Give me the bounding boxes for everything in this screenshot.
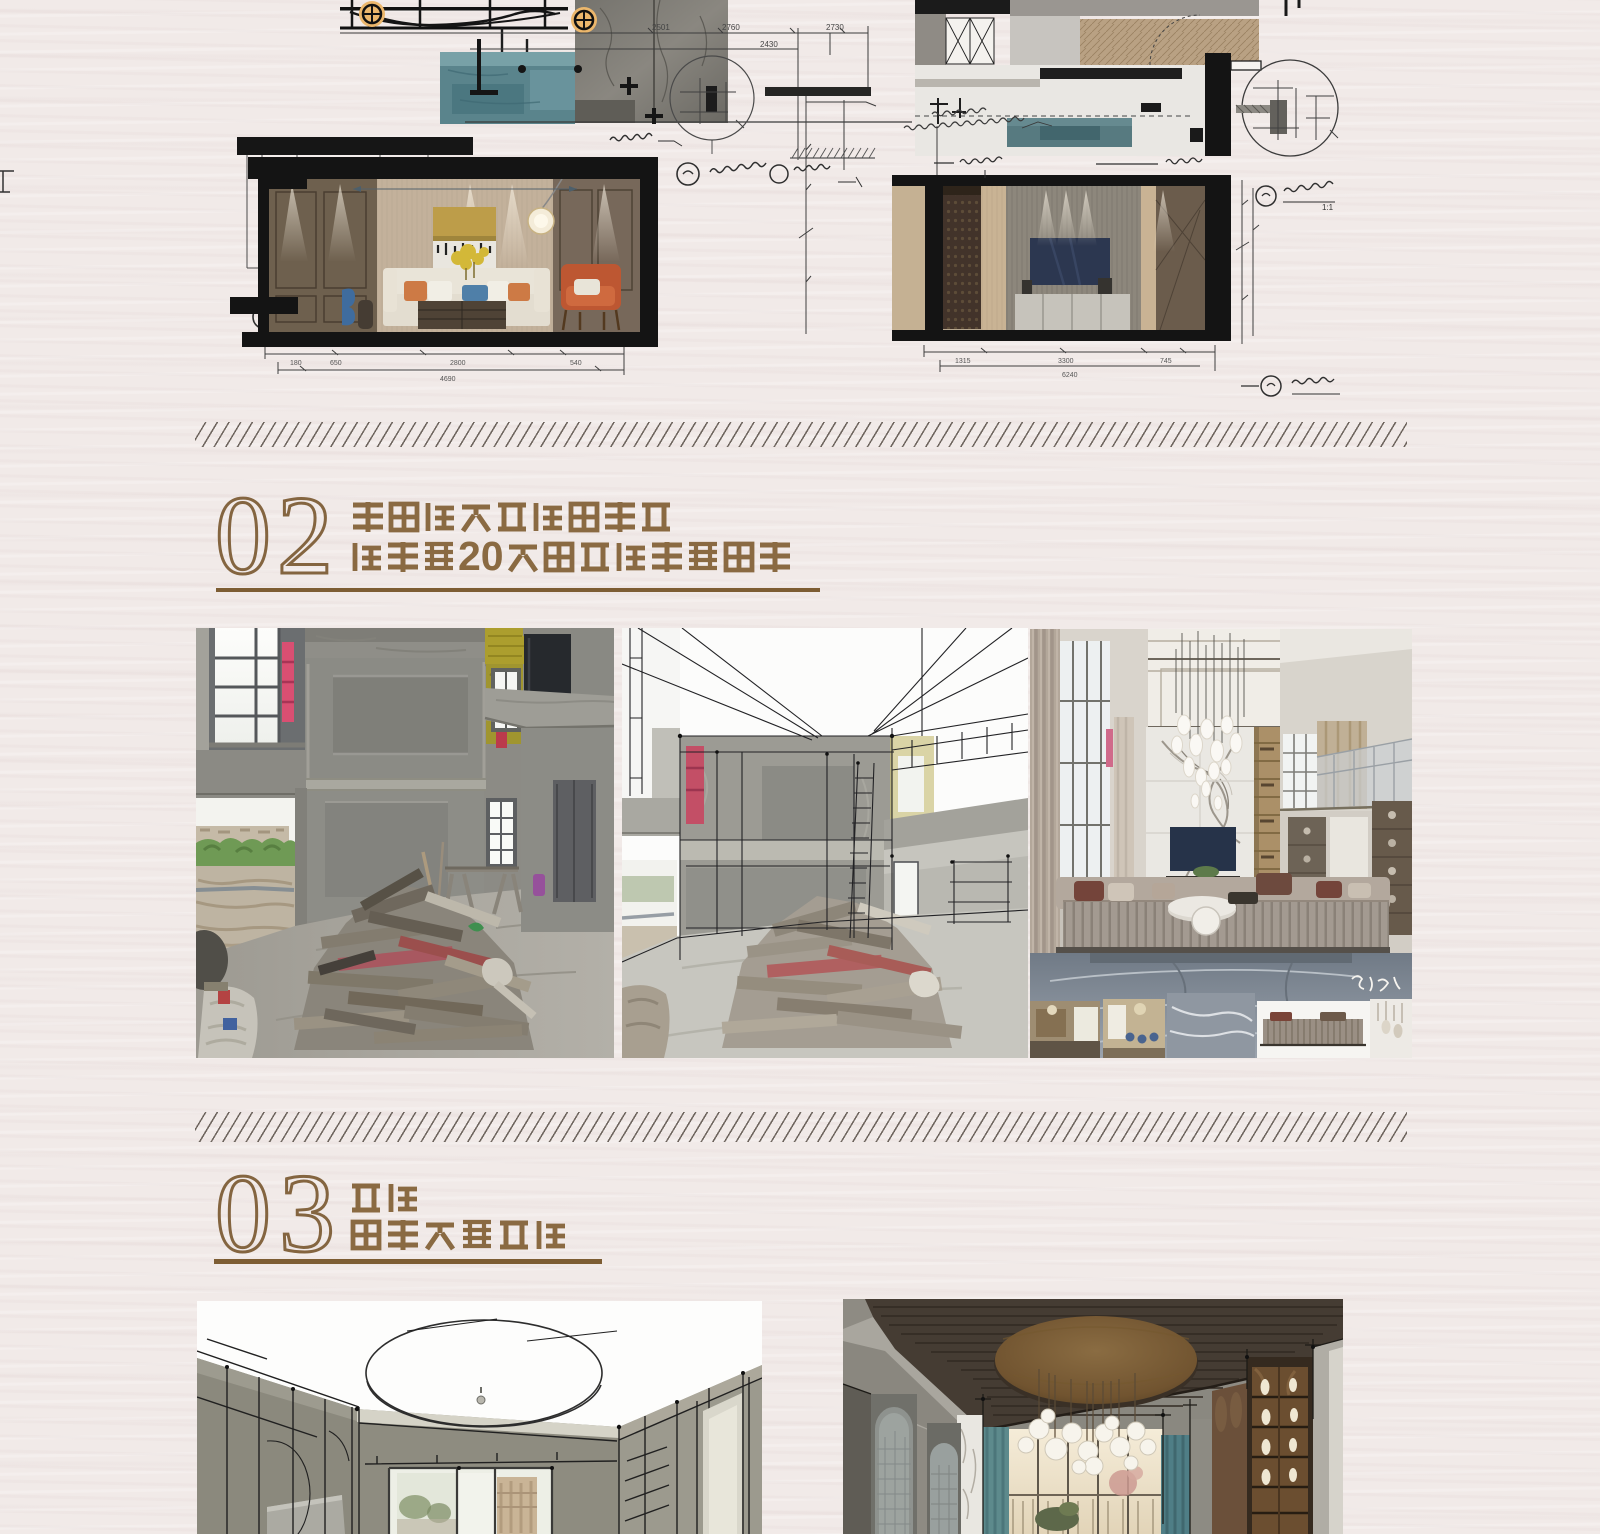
svg-text:180: 180 xyxy=(290,360,302,367)
svg-text:2501: 2501 xyxy=(652,23,670,32)
svg-text:2760: 2760 xyxy=(722,23,740,32)
svg-text:2800: 2800 xyxy=(450,360,466,367)
svg-text:20: 20 xyxy=(458,539,504,576)
svg-text:2430: 2430 xyxy=(760,40,778,49)
svg-text:03: 03 xyxy=(215,1164,335,1264)
svg-text:02: 02 xyxy=(215,486,333,586)
svg-text:3300: 3300 xyxy=(1058,358,1074,365)
svg-text:540: 540 xyxy=(570,360,582,367)
svg-text:1315: 1315 xyxy=(955,358,971,365)
svg-text:745: 745 xyxy=(1160,358,1172,365)
svg-text:650: 650 xyxy=(330,360,342,367)
svg-text:4690: 4690 xyxy=(440,376,456,383)
svg-text:1:1: 1:1 xyxy=(1322,203,1334,212)
svg-text:6240: 6240 xyxy=(1062,372,1078,379)
svg-text:2730: 2730 xyxy=(826,23,844,32)
